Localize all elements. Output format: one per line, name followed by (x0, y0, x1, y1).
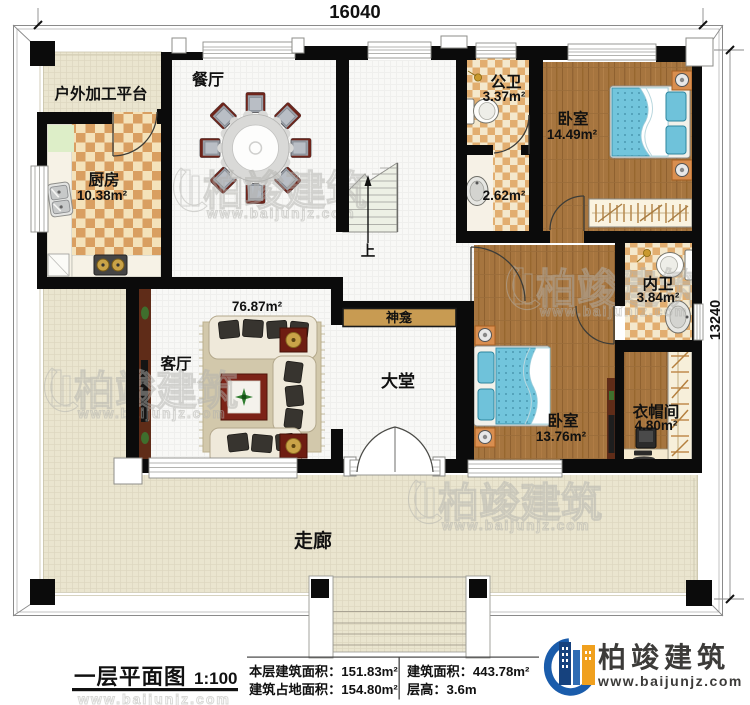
svg-text:3.84m²: 3.84m² (637, 290, 680, 305)
svg-text:4.80m²: 4.80m² (635, 418, 678, 433)
svg-text:建筑面积：443.78m²: 建筑面积：443.78m² (407, 663, 530, 679)
svg-text:上: 上 (361, 243, 376, 260)
svg-text:10.38m²: 10.38m² (77, 188, 128, 203)
svg-text:卧室: 卧室 (547, 411, 578, 430)
svg-text:层高：3.6m: 层高：3.6m (407, 681, 477, 697)
svg-text:本层建筑面积：151.83m²: 本层建筑面积：151.83m² (249, 663, 398, 679)
svg-text:3.37m²: 3.37m² (483, 89, 526, 104)
svg-text:一层平面图: 一层平面图 (74, 665, 187, 689)
svg-text:神龛: 神龛 (386, 310, 413, 325)
svg-text:户外加工平台: 户外加工平台 (54, 84, 147, 103)
svg-text:建筑占地面积：154.80m²: 建筑占地面积：154.80m² (249, 681, 398, 697)
svg-text:厨房: 厨房 (88, 170, 119, 189)
svg-text:卧室: 卧室 (557, 109, 588, 128)
svg-text:1:100: 1:100 (194, 669, 237, 688)
svg-text:13240: 13240 (708, 300, 724, 340)
svg-text:14.49m²: 14.49m² (547, 127, 598, 142)
svg-text:走廊: 走廊 (294, 529, 332, 552)
svg-text:13.76m²: 13.76m² (536, 429, 587, 444)
svg-text:2.62m²: 2.62m² (483, 188, 526, 203)
svg-text:76.87m²: 76.87m² (232, 299, 283, 314)
svg-text:柏竣建筑: 柏竣建筑 (598, 641, 730, 673)
svg-text:餐厅: 餐厅 (191, 70, 224, 89)
svg-text:16040: 16040 (329, 1, 380, 22)
svg-text:www.baijunjz.com: www.baijunjz.com (77, 691, 231, 705)
svg-text:www.baijunjz.com: www.baijunjz.com (597, 673, 743, 689)
svg-text:大堂: 大堂 (381, 371, 415, 391)
svg-text:客厅: 客厅 (160, 354, 192, 373)
